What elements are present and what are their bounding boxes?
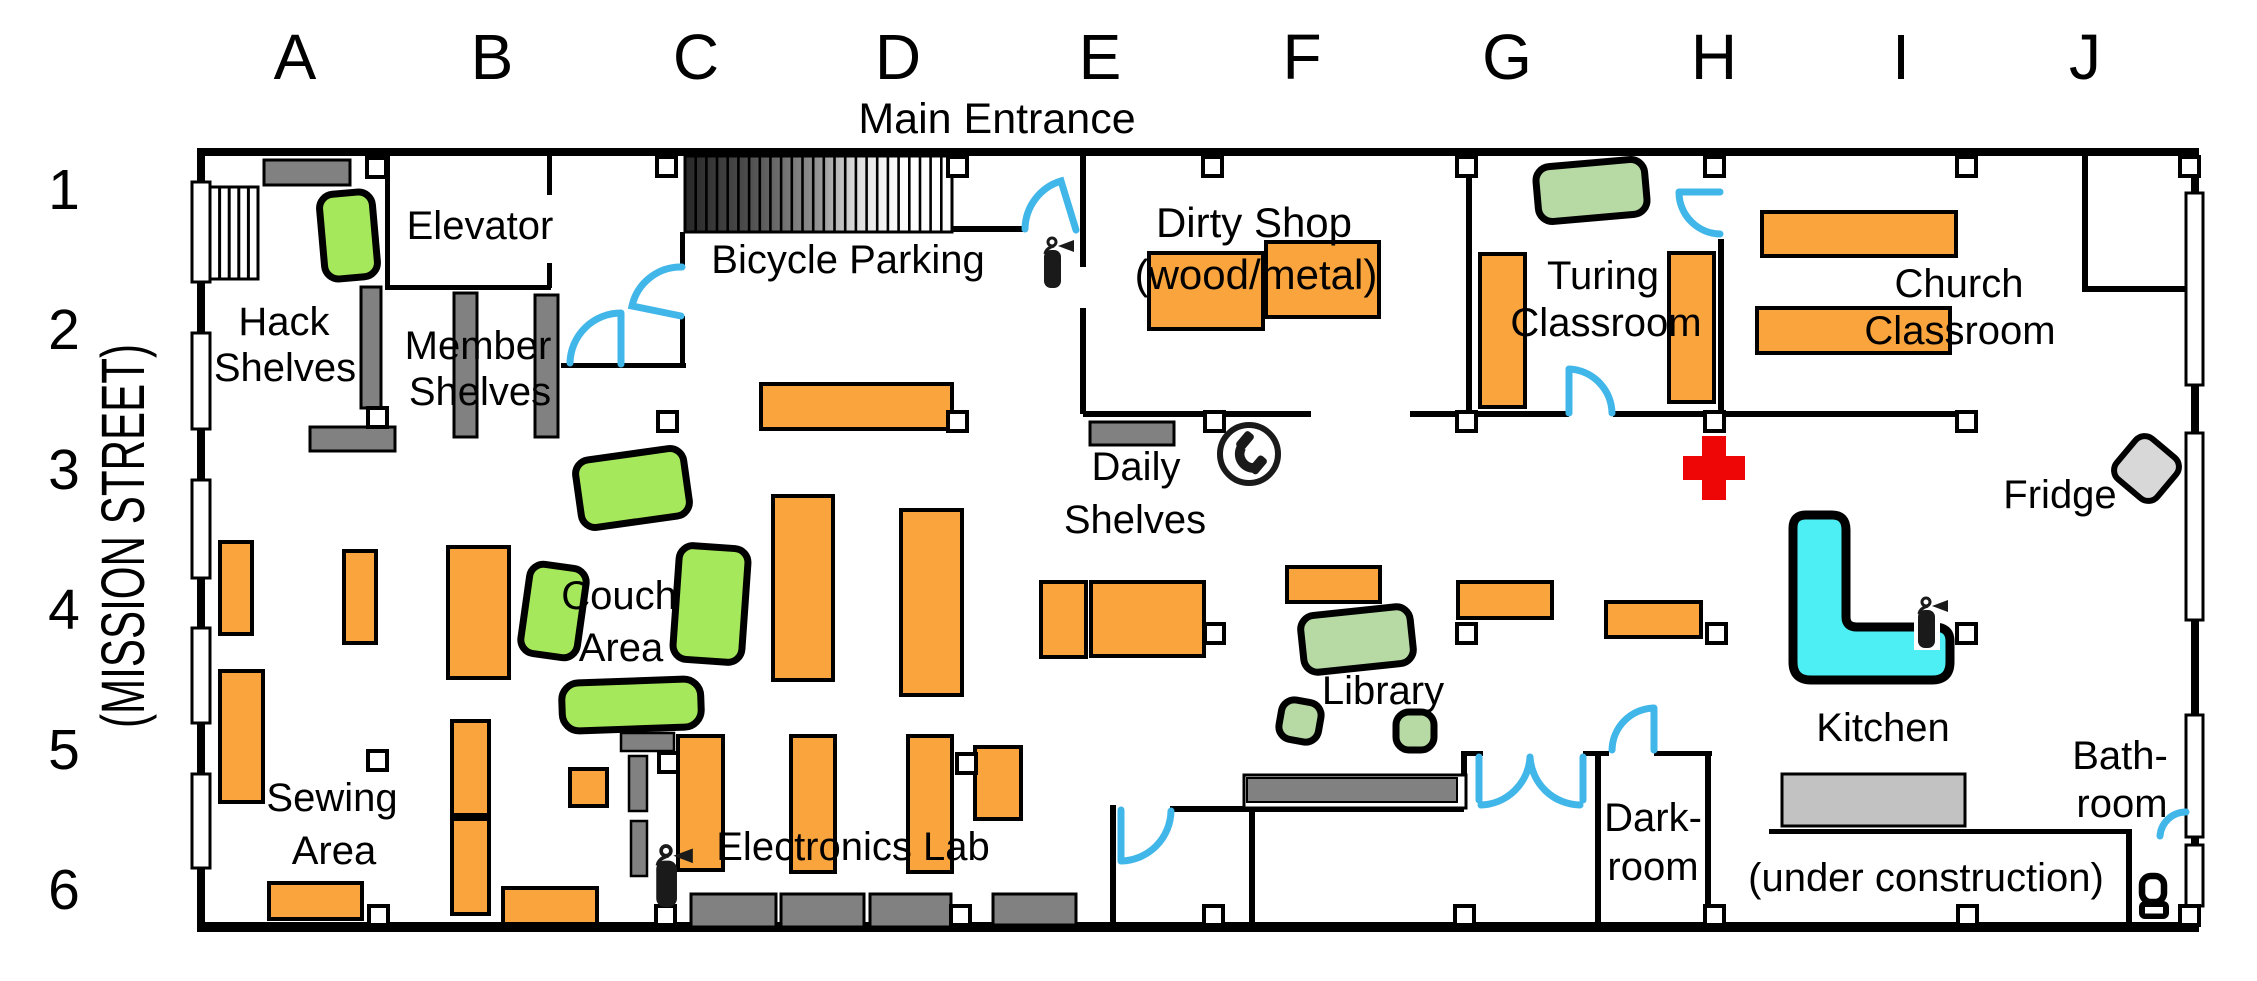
- svg-text:H: H: [1691, 21, 1737, 93]
- svg-text:Shelves: Shelves: [1064, 498, 1206, 542]
- svg-text:4: 4: [48, 578, 80, 642]
- svg-text:I: I: [1892, 21, 1910, 93]
- svg-text:E: E: [1079, 21, 1122, 93]
- svg-text:1: 1: [48, 158, 80, 222]
- svg-text:Classroom: Classroom: [1864, 309, 2055, 353]
- svg-text:B: B: [471, 21, 514, 93]
- svg-text:Turing: Turing: [1547, 254, 1659, 298]
- svg-text:Elevator: Elevator: [407, 204, 554, 248]
- svg-text:Sewing: Sewing: [266, 776, 397, 820]
- svg-text:6: 6: [48, 858, 80, 922]
- svg-text:Hack: Hack: [238, 300, 330, 344]
- svg-text:(wood/metal): (wood/metal): [1135, 251, 1378, 298]
- svg-text:Area: Area: [292, 829, 377, 873]
- svg-text:Couch: Couch: [561, 574, 677, 618]
- svg-text:D: D: [875, 21, 921, 93]
- svg-text:Member: Member: [405, 324, 552, 368]
- svg-text:(under construction): (under construction): [1748, 856, 2104, 900]
- svg-text:Daily: Daily: [1092, 445, 1181, 489]
- svg-text:2: 2: [48, 298, 80, 362]
- svg-text:Shelves: Shelves: [214, 346, 356, 390]
- svg-text:Bicycle Parking: Bicycle Parking: [711, 238, 984, 282]
- svg-text:Church: Church: [1895, 262, 2024, 306]
- svg-text:3: 3: [48, 438, 80, 502]
- svg-text:Fridge: Fridge: [2003, 473, 2116, 517]
- svg-text:Dark-: Dark-: [1604, 796, 1702, 840]
- svg-text:(MISSION STREET): (MISSION STREET): [89, 344, 157, 728]
- svg-text:Dirty Shop: Dirty Shop: [1156, 199, 1352, 246]
- svg-text:Electronics Lab: Electronics Lab: [716, 825, 989, 869]
- svg-text:room: room: [1607, 845, 1698, 889]
- svg-text:A: A: [274, 21, 317, 93]
- svg-text:Kitchen: Kitchen: [1816, 706, 1949, 750]
- svg-text:G: G: [1482, 21, 1532, 93]
- svg-text:Bath-: Bath-: [2072, 734, 2168, 778]
- svg-text:C: C: [673, 21, 719, 93]
- svg-text:Classroom: Classroom: [1510, 301, 1701, 345]
- svg-text:Main Entrance: Main Entrance: [858, 95, 1135, 143]
- svg-text:5: 5: [48, 718, 80, 782]
- svg-text:Shelves: Shelves: [409, 370, 551, 414]
- svg-text:room: room: [2076, 782, 2167, 826]
- svg-text:Library: Library: [1322, 669, 1444, 713]
- svg-text:F: F: [1282, 21, 1321, 93]
- svg-text:Area: Area: [579, 626, 664, 670]
- svg-text:J: J: [2069, 21, 2101, 93]
